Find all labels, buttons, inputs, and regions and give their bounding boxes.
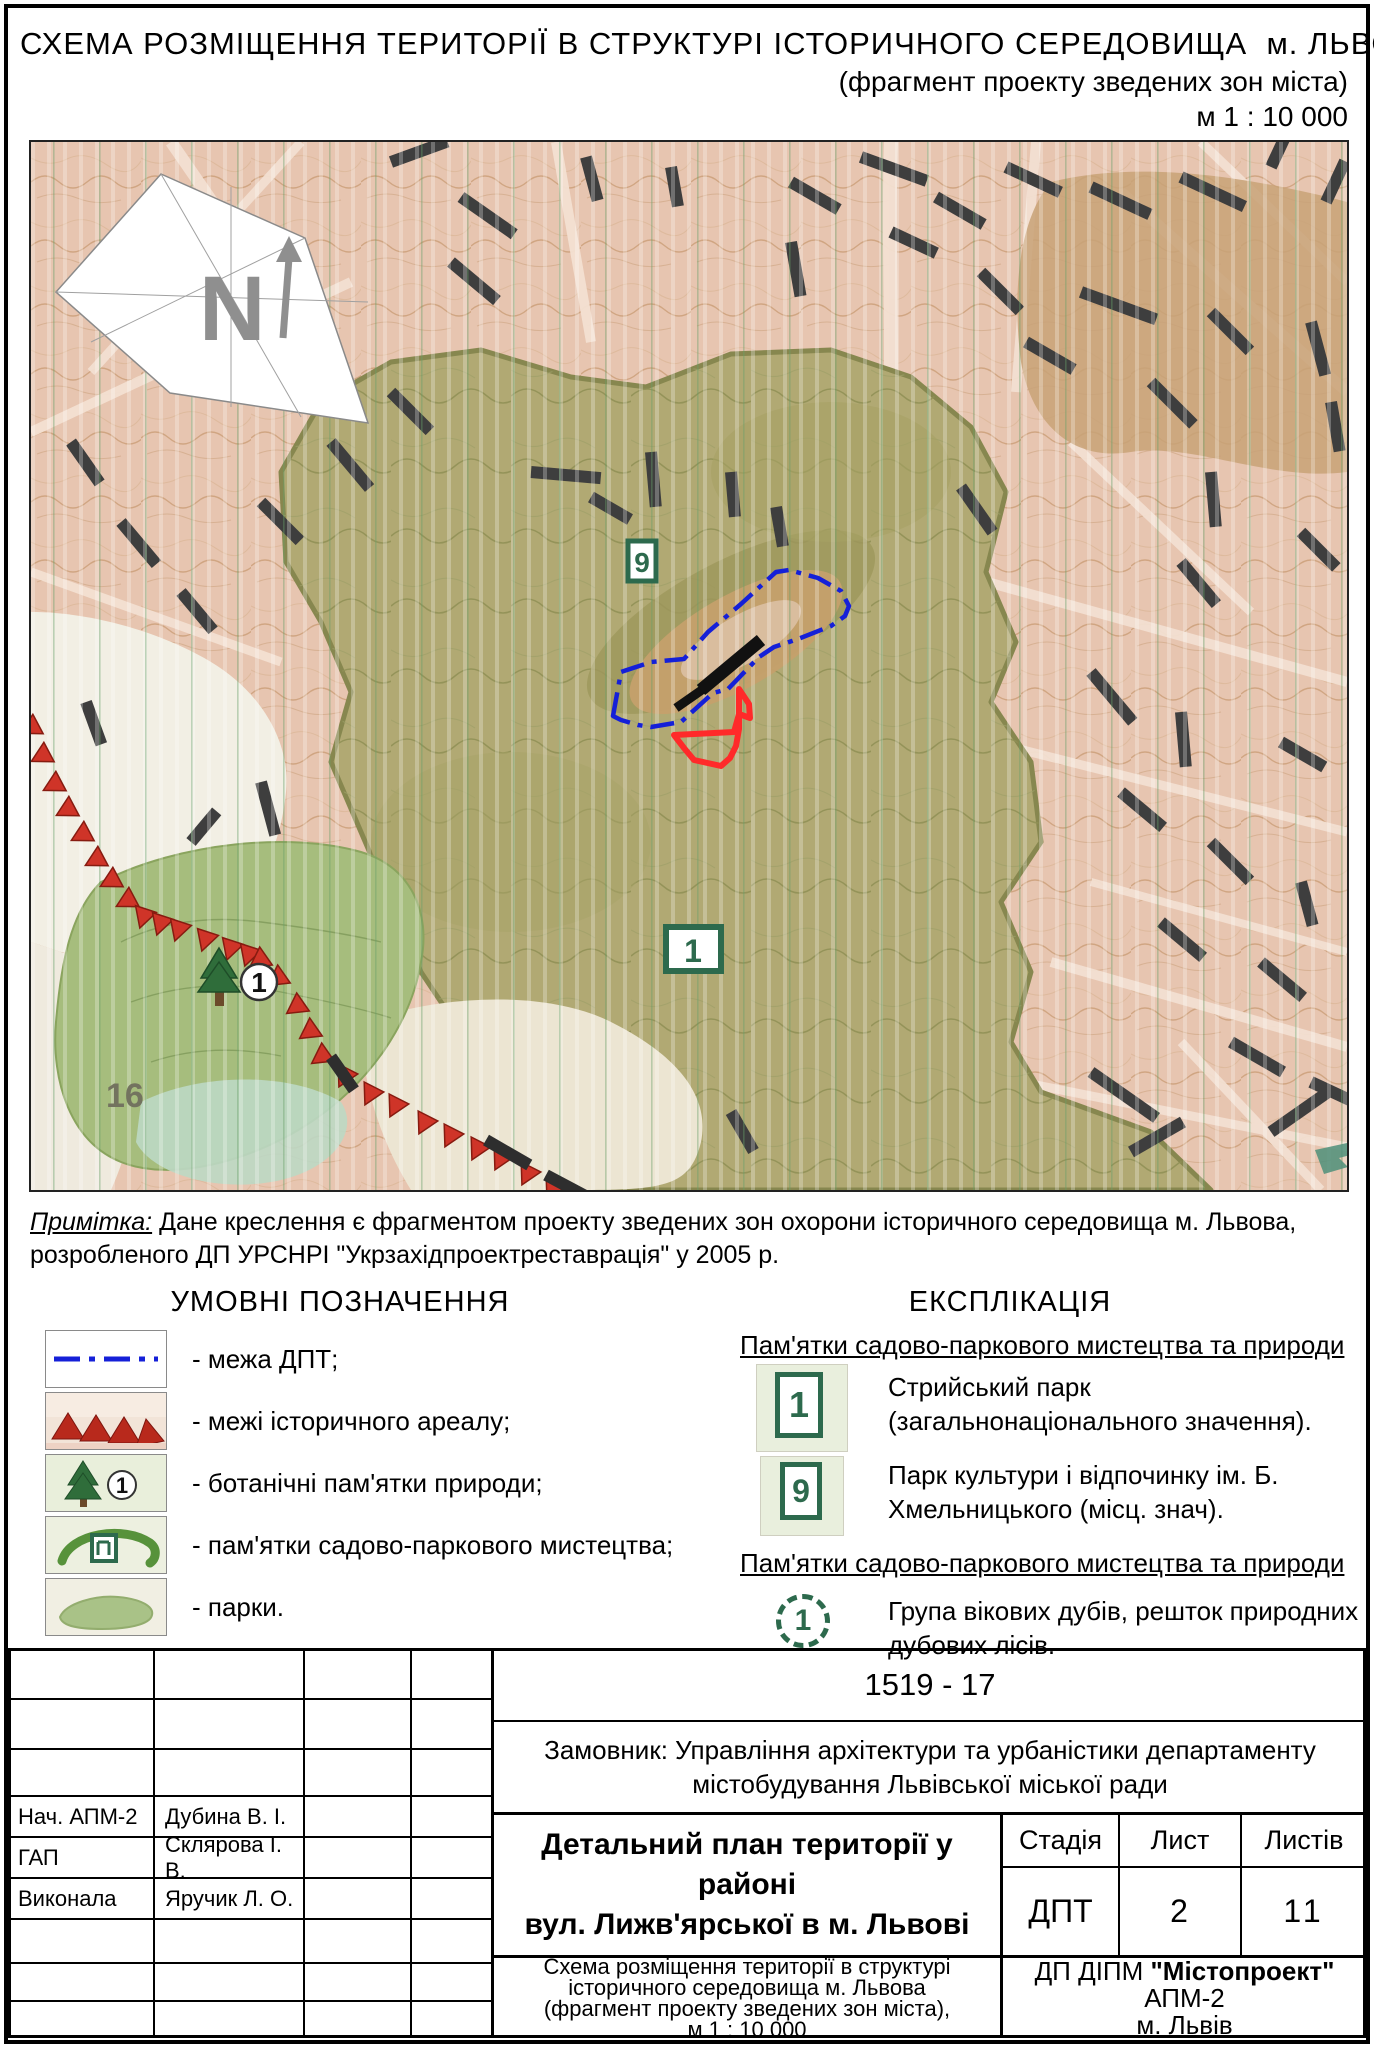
legend-item-label: - межі історичного ареалу;	[192, 1392, 752, 1450]
legend-title: УМОВНІ ПОЗНАЧЕННЯ	[40, 1286, 640, 1319]
botanical-icon-number: 1	[116, 1473, 128, 1498]
map-label-16: 16	[106, 1077, 144, 1115]
stage-value: ДПТ	[1003, 1868, 1118, 1955]
park-symbol-1-label: 1	[684, 933, 702, 969]
grid-line	[303, 1648, 305, 2038]
explication-title: ЕКСПЛІКАЦІЯ	[700, 1286, 1320, 1319]
park-symbol-9-label: 9	[634, 547, 650, 578]
note-text-line2: розробленого ДП УРСНРІ "Укрзахідпроектре…	[30, 1241, 779, 1269]
park-symbol-9-icon: 9	[780, 1462, 822, 1520]
legend-item-label: - межа ДПТ;	[192, 1330, 752, 1388]
sheets-value: 11	[1242, 1868, 1366, 1955]
park-symbol-9: 9	[628, 541, 656, 581]
signer-name: Склярова І. В.	[157, 1838, 301, 1877]
sheet-value: 2	[1120, 1868, 1240, 1955]
drawing-title: Схема розміщення території в структурі і…	[494, 1958, 1000, 2038]
signer-name: Яручик Л. О.	[157, 1879, 301, 1918]
signer-name: Дубина В. І.	[157, 1797, 301, 1836]
parks-icon	[45, 1578, 167, 1636]
sheet-header: Лист	[1120, 1814, 1240, 1866]
project-number: 1519 - 17	[494, 1650, 1366, 1720]
organization-unit: АПМ-2	[1144, 1985, 1225, 2012]
client-line1: Замовник: Управління архітектури та урба…	[544, 1733, 1316, 1767]
grid-line	[8, 1962, 491, 1964]
drawing-title-line4: м 1 : 10 000	[687, 2019, 806, 2040]
signer-role: ГАП	[10, 1838, 150, 1877]
map-scale: м 1 : 10 000	[1196, 101, 1348, 133]
park-symbol-9-number: 9	[792, 1473, 810, 1510]
organization-name: ДП ДІПМ "Містопроект"	[1035, 1958, 1335, 1985]
grid-line	[8, 2000, 491, 2002]
dpt-boundary-icon	[45, 1330, 167, 1388]
note-label: Примітка:	[30, 1208, 152, 1236]
grid-line	[8, 1748, 491, 1750]
explication-item-text: Парк культури і відпочинку ім. Б. Хмельн…	[888, 1458, 1374, 1526]
legend-item-label: - парки.	[192, 1578, 752, 1636]
drawing-sheet: { "header": { "title_line1": "СХЕМА РОЗМ…	[0, 0, 1374, 2048]
legend-item-label: - ботанічні пам'ятки природи;	[192, 1454, 752, 1512]
map-canvas: 9 1 1 16 N	[31, 142, 1347, 1190]
park-symbol-1-number: 1	[789, 1384, 809, 1426]
north-label: N	[199, 258, 265, 360]
grid-line	[8, 1918, 491, 1920]
note-text-line1: Дане креслення є фрагментом проекту звед…	[159, 1208, 1296, 1236]
project-title-line2: вул. Лижв'ярської в м. Львові	[524, 1905, 969, 1945]
page-title: СХЕМА РОЗМІЩЕННЯ ТЕРИТОРІЇ В СТРУКТУРІ І…	[20, 26, 1354, 62]
grid-line	[153, 1648, 155, 2038]
organization-info: ДП ДІПМ "Містопроект" АПМ-2 м. Львів	[1003, 1958, 1366, 2038]
organization-city: м. Львів	[1136, 2012, 1232, 2039]
explication-section1-title: Пам'ятки садово-паркового мистецтва та п…	[740, 1330, 1344, 1361]
grid-line	[410, 1648, 412, 2038]
oak-group-number: 1	[795, 1604, 812, 1638]
park-symbol-1: 1	[666, 927, 721, 971]
organization-brand: "Містопроект"	[1150, 1956, 1334, 1986]
explication-item-text: Стрийський парк (загальнонаціонального з…	[888, 1370, 1374, 1438]
explication-section2-title: Пам'ятки садово-паркового мистецтва та п…	[740, 1548, 1344, 1579]
project-title-line1: Детальний план території у районі	[494, 1825, 1000, 1905]
signer-role: Нач. АПМ-2	[10, 1797, 150, 1836]
signer-role: Виконала	[10, 1879, 150, 1918]
drawing-title-line1: Схема розміщення території в структурі	[543, 1956, 950, 1977]
park-symbol-1-icon: 1	[775, 1372, 823, 1438]
client-info: Замовник: Управління архітектури та урба…	[494, 1722, 1366, 1812]
map: 9 1 1 16 N	[29, 140, 1349, 1192]
organization-prefix: ДП ДІПМ	[1035, 1956, 1151, 1986]
botanical-icon: 1	[45, 1454, 167, 1512]
historic-areal-icon	[45, 1392, 167, 1450]
oak-group-icon: 1	[776, 1594, 830, 1648]
sheets-header: Листів	[1242, 1814, 1366, 1866]
legend-item-label: - пам'ятки садово-паркового мистецтва;	[192, 1516, 752, 1574]
client-line2: містобудування Львівської міської ради	[692, 1767, 1168, 1801]
note: Примітка: Дане креслення є фрагментом пр…	[30, 1206, 1360, 1272]
stage-header: Стадія	[1003, 1814, 1118, 1866]
botanical-monument-label: 1	[251, 967, 267, 998]
page-subtitle: (фрагмент проекту зведених зон міста)	[839, 66, 1348, 98]
drawing-title-line3: (фрагмент проекту зведених зон міста),	[544, 1998, 950, 2019]
garden-park-icon	[45, 1516, 167, 1574]
grid-line	[8, 1698, 491, 1700]
drawing-title-line2: історичного середовища м. Львова	[568, 1977, 926, 1998]
project-title: Детальний план території у районі вул. Л…	[494, 1815, 1000, 1955]
